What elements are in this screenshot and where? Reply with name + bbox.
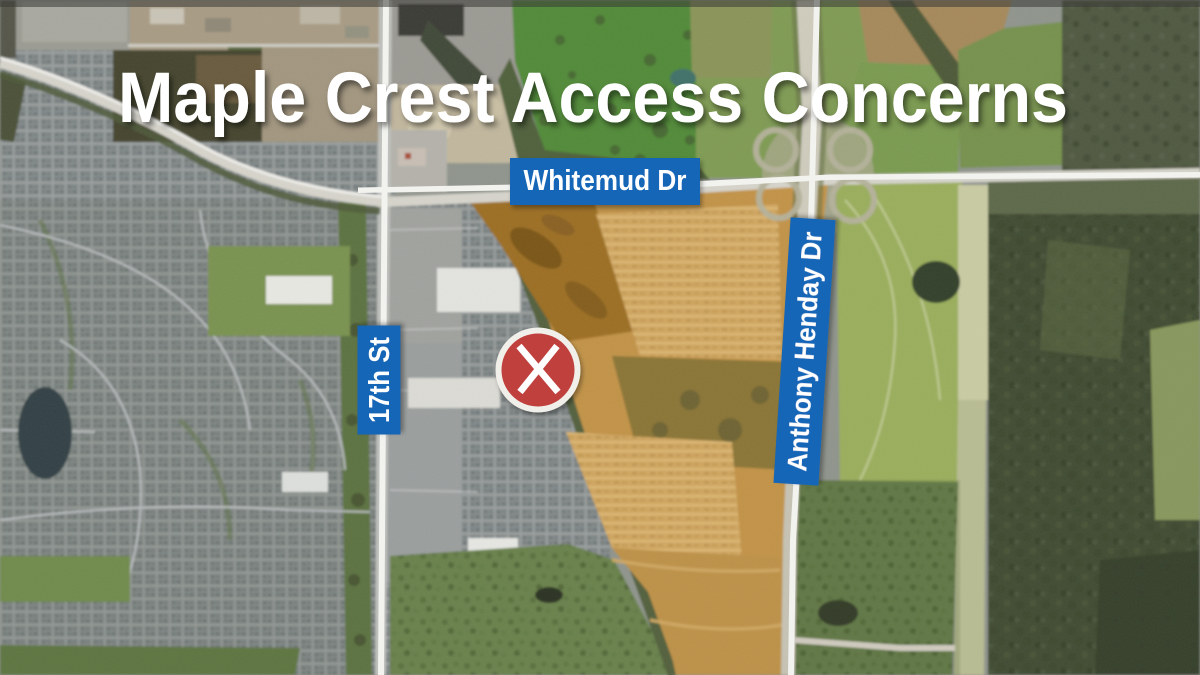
svg-text:Maple Crest Access Concerns: Maple Crest Access Concerns — [118, 59, 1068, 138]
svg-text:Whitemud Dr: Whitemud Dr — [524, 165, 687, 197]
svg-text:17th St: 17th St — [364, 337, 396, 423]
